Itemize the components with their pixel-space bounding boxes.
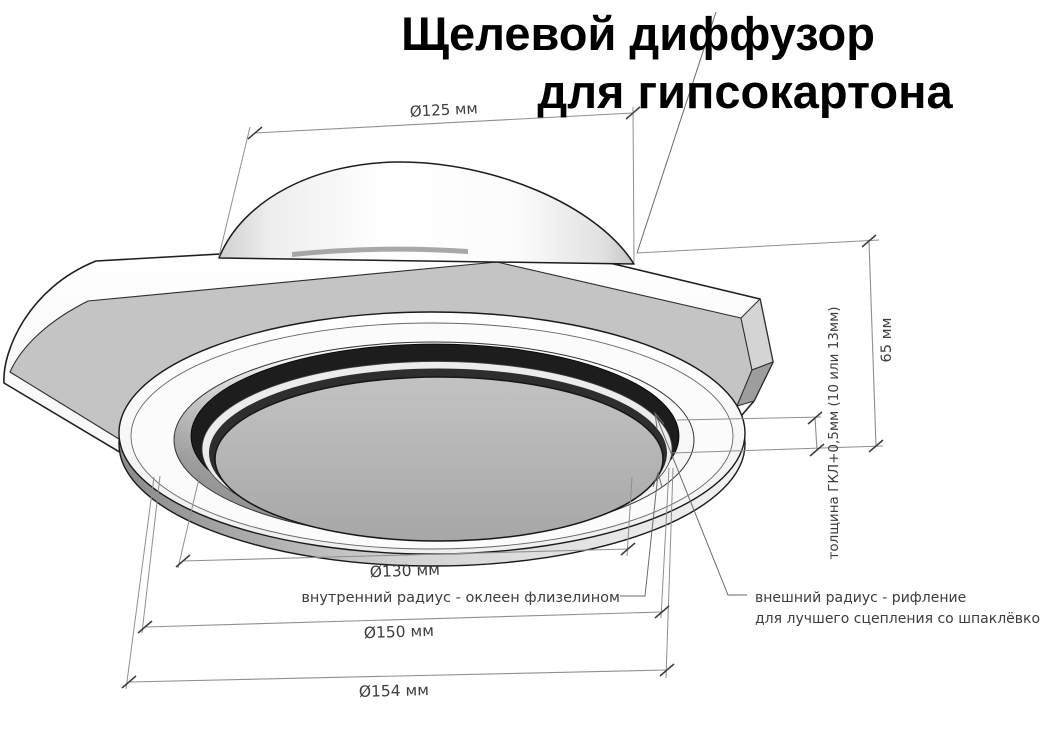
diffuser-technical-drawing: Ø125 мм Ø130 мм Ø150 мм Ø154 мм 65 мм то… [0,0,1040,729]
title-line-2: для гипсокартона [537,65,953,118]
drawing-title: Щелевой диффузор для гипсокартона [401,7,953,118]
annotation-outer-radius-line2: для лучшего сцепления со шпаклёвкой [755,611,1040,627]
inner-disc [215,377,663,541]
dimline-h65 [869,241,876,446]
dimension-label-thickness: толщина ГКЛ+0,5мм (10 или 13мм) [826,306,842,559]
dimension-label-d125: Ø125 мм [409,99,478,121]
dimension-label-d154: Ø154 мм [359,681,430,701]
dimline-d154 [129,670,667,682]
annotation-outer-radius-line1: внешний радиус - рифление [755,590,966,606]
title-line-1: Щелевой диффузор [401,7,875,60]
dimension-label-d150: Ø150 мм [363,622,434,642]
dimension-label-h65: 65 мм [879,318,895,363]
dimension-label-d130: Ø130 мм [369,561,440,581]
ext-h65-top [637,240,879,253]
ext-d125-right [633,107,634,262]
drawing-canvas: Ø125 мм Ø130 мм Ø150 мм Ø154 мм 65 мм то… [0,0,1040,729]
annotation-inner-radius: внутренний радиус - оклеен флизелином [301,590,620,606]
dimline-thickness [815,418,817,450]
ext-d154-left [126,477,154,689]
